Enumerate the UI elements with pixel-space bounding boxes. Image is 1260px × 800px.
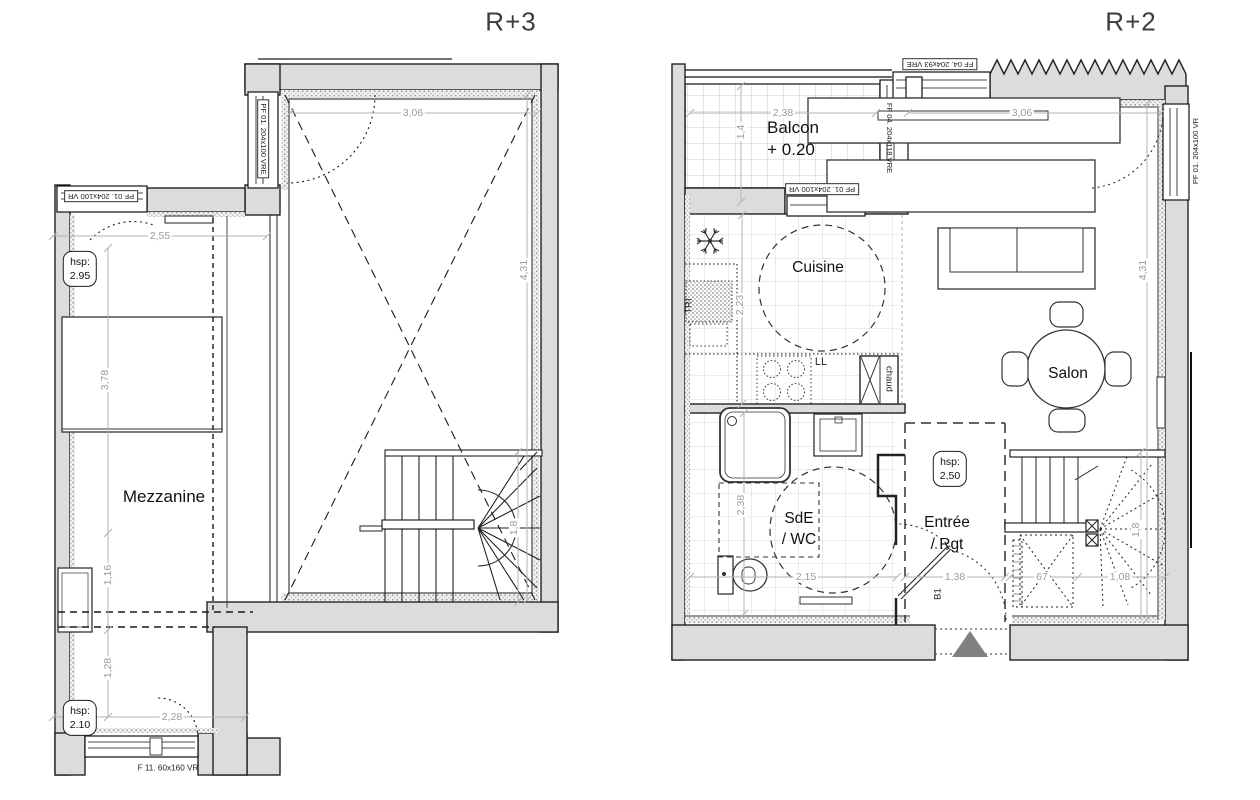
floorplan-drawing xyxy=(0,0,1260,800)
annotation-ll: LL xyxy=(815,356,827,368)
plan-r2-title: R+2 xyxy=(1105,7,1156,38)
dim-r3-bed-length: 3,78 xyxy=(100,368,111,392)
ceiling-height-box-r3-bottom: hsp: 2.10 xyxy=(63,700,97,736)
annotation-b1: B1 xyxy=(933,588,944,600)
dim-r2-stair-w1: 67 xyxy=(1034,572,1050,583)
washbasin xyxy=(814,414,862,456)
window-label-r2-right: PF 01. 204x100 VR xyxy=(1191,115,1201,187)
hsp-label: hsp: xyxy=(70,704,90,718)
window-label-r3-left: PF 01. 204x100 VR xyxy=(64,190,138,202)
dim-r2-stair: 1,8 xyxy=(1131,521,1142,540)
window-label-r3-bottom: F 11. 60x160 VR xyxy=(135,762,202,773)
hsp-value: 2.95 xyxy=(70,269,90,283)
dim-r3-mezz-width: 2,55 xyxy=(148,231,172,242)
bed xyxy=(62,317,222,432)
dim-r3-stair: 1,8 xyxy=(509,519,520,538)
radiator xyxy=(1157,377,1165,428)
room-label-rgt: / Rgt xyxy=(931,536,964,554)
dim-r3-128: 1,28 xyxy=(103,656,114,680)
window-label-r3-vertical: PF 01. 204x100 VRE xyxy=(257,99,269,178)
dim-r2-top-width: 3,06 xyxy=(1010,108,1034,119)
window-label-r2-balcony-bottom: PF 01. 204x100 VR xyxy=(785,183,859,195)
ceiling-height-box-r2: hsp: 2,50 xyxy=(933,451,967,487)
room-label-salon: Salon xyxy=(1048,365,1088,383)
hsp-value: 2,50 xyxy=(940,469,960,483)
dim-r3-116: 1,16 xyxy=(103,563,114,587)
dim-r2-balcon-depth: 1,4 xyxy=(736,123,747,142)
dim-r2-room-height: 4,31 xyxy=(1138,258,1149,282)
annotation-chaud: chaud xyxy=(884,366,895,392)
hsp-label: hsp: xyxy=(70,255,90,269)
room-label-sde: SdE xyxy=(784,510,813,528)
entrance-triangle-icon xyxy=(952,631,988,657)
annotation-tri: TRI xyxy=(684,298,695,313)
room-label-wc: / WC xyxy=(782,531,816,549)
room-label-entree: Entrée xyxy=(924,514,970,532)
room-label-cuisine: Cuisine xyxy=(792,259,844,277)
dim-r2-stair-w2: 1,08 xyxy=(1108,572,1132,583)
dim-r3-top-width: 3,06 xyxy=(401,108,425,119)
plan-r3 xyxy=(49,59,558,775)
hsp-value: 2.10 xyxy=(70,718,90,732)
dim-r2-sde-height: 2,38 xyxy=(736,493,747,517)
room-label-mezzanine: Mezzanine xyxy=(123,487,205,507)
window-label-r2-balcony-right: FF 04. 204x118 VRE xyxy=(884,100,894,176)
dim-r2-entree-width: 1,38 xyxy=(943,572,967,583)
hsp-label: hsp: xyxy=(940,455,960,469)
dim-r2-kitchen-depth: 2,23 xyxy=(735,293,746,317)
plan-r3-title: R+3 xyxy=(485,7,536,38)
dim-r2-balcon-width: 2,38 xyxy=(771,108,795,119)
ceiling-height-box-r3-top: hsp: 2.95 xyxy=(63,251,97,287)
room-label-balcon: Balcon xyxy=(767,118,819,138)
room-label-balcon-level: + 0.20 xyxy=(767,140,815,160)
dim-r2-sde-width: 2,15 xyxy=(794,572,818,583)
shower xyxy=(720,408,790,482)
dim-r3-room-height: 4,31 xyxy=(519,258,530,282)
dim-r3-bottom-width: 2,28 xyxy=(160,712,184,723)
floorplan-canvas: R+3 3,06 PF 01. 204x100 VRE PF 01. 204x1… xyxy=(0,0,1260,800)
window-label-r2-top: FF 04. 204x93 VRE xyxy=(903,58,978,70)
